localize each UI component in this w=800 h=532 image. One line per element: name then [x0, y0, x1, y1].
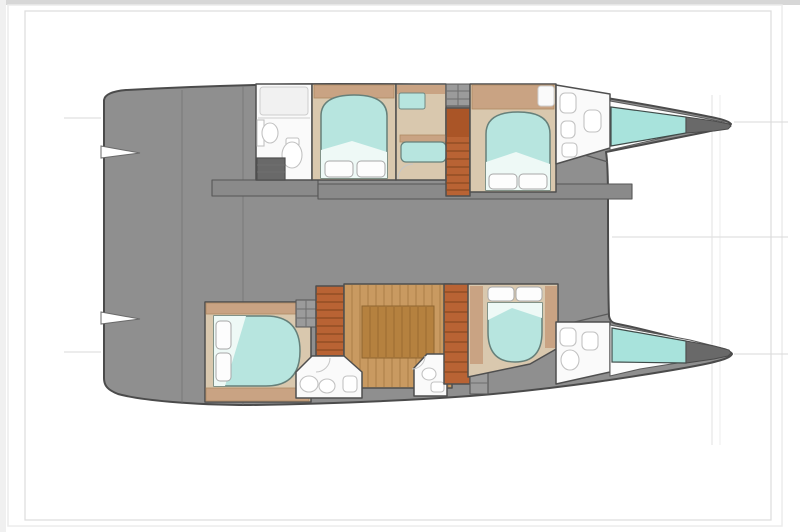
cabin-cabinets-top — [206, 303, 309, 314]
pillow — [516, 287, 542, 301]
door-nook — [538, 86, 554, 106]
vanity-stool — [399, 93, 425, 109]
frame-left-band — [0, 0, 6, 532]
shower-icon — [343, 376, 357, 392]
port-aft-cabin — [312, 84, 396, 180]
sink-icon — [262, 123, 278, 143]
port-settee-area — [396, 84, 446, 180]
stairs-landing — [447, 109, 469, 137]
stbd-aft-bathroom — [296, 356, 362, 398]
pillow — [216, 321, 231, 349]
wood-floor-center — [362, 306, 434, 358]
pillow — [325, 161, 353, 177]
pillow — [216, 353, 231, 381]
cabin-cabinet-right — [545, 286, 557, 348]
floor-plan-image — [0, 0, 800, 532]
companionway-stairs — [444, 284, 470, 384]
settee-bench — [401, 142, 446, 162]
toilet-icon — [561, 121, 575, 138]
pillow — [519, 174, 547, 189]
sink-icon — [560, 93, 576, 113]
shower-seat — [582, 332, 598, 350]
toilet-icon — [319, 379, 335, 393]
cabin-cabinet-left — [470, 286, 483, 364]
port-aft-bathroom — [256, 84, 312, 180]
port-forward-cabin — [470, 84, 556, 192]
toilet-icon — [561, 350, 579, 370]
port-walkway-aft — [212, 180, 318, 196]
pillow — [488, 287, 514, 301]
sink-icon — [560, 328, 576, 346]
storage-cabinet — [257, 158, 285, 180]
toilet-icon — [422, 368, 436, 380]
companionway-stairs — [316, 286, 344, 356]
settee-back — [400, 135, 446, 142]
shower — [260, 87, 308, 115]
cabin-cabinets-bottom — [206, 388, 309, 401]
sink-icon — [431, 382, 444, 392]
stbd-aft-cabin — [205, 302, 311, 402]
sink-icon — [300, 376, 318, 392]
shower-seat — [584, 110, 601, 132]
pillow — [357, 161, 385, 177]
pillow — [489, 174, 517, 189]
locker — [562, 143, 577, 157]
